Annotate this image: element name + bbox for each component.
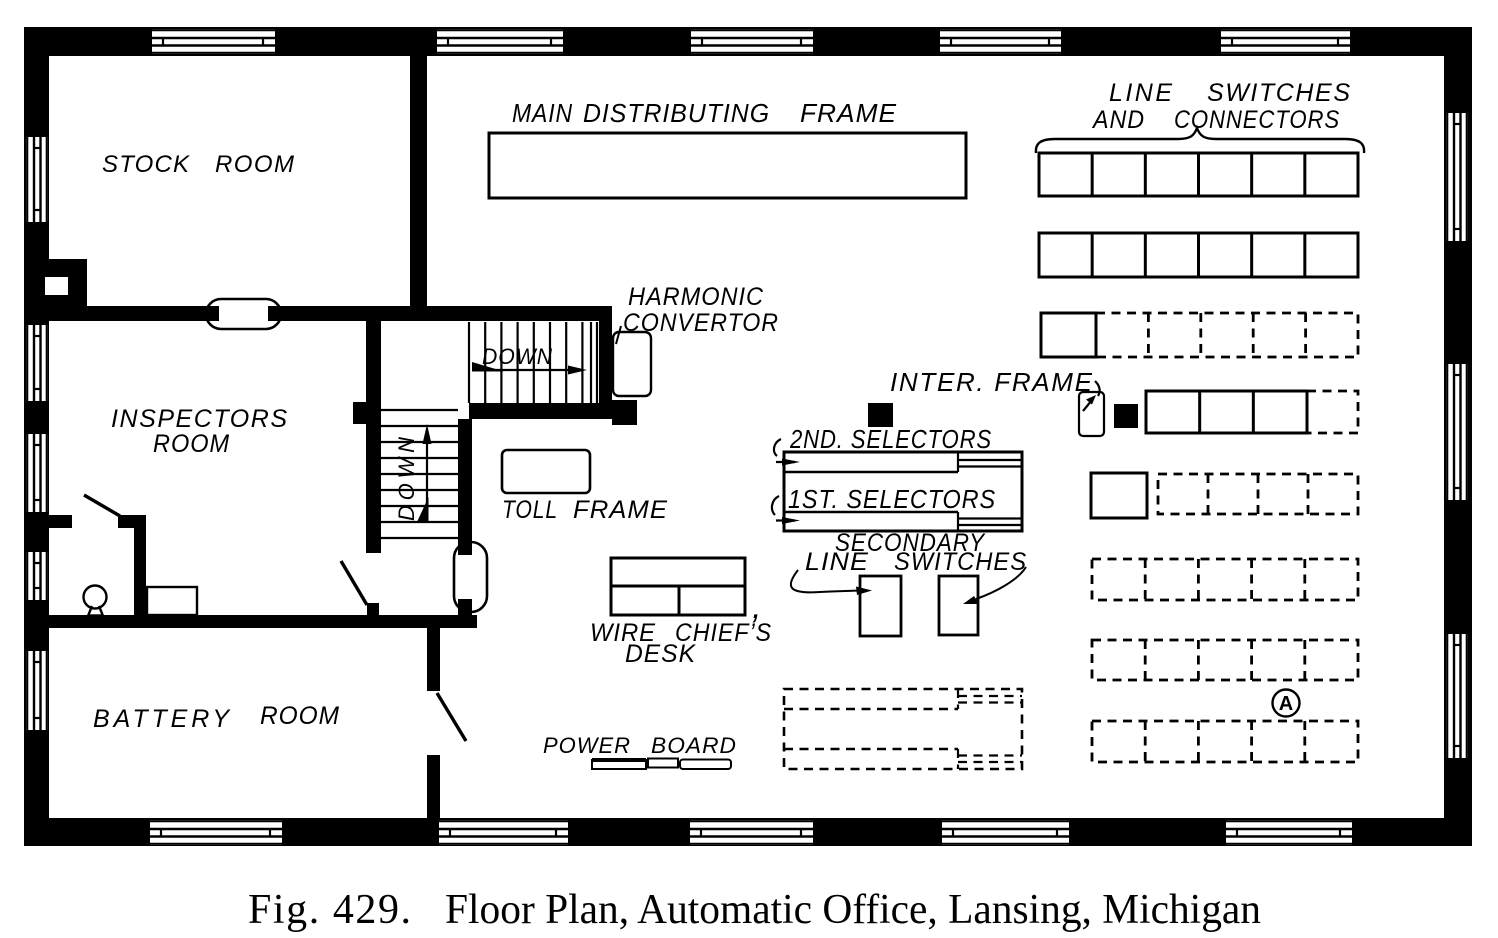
svg-text:INTER. FRAME: INTER. FRAME	[890, 367, 1093, 397]
svg-text:INSPECTORS: INSPECTORS	[111, 405, 288, 433]
svg-text:Fig. 429.: Fig. 429.	[248, 887, 411, 933]
svg-text:DOWN: DOWN	[482, 344, 553, 369]
svg-text:HARMONIC: HARMONIC	[628, 283, 764, 311]
svg-text:DISTRIBUTING: DISTRIBUTING	[583, 98, 770, 128]
svg-text:FRAME: FRAME	[573, 496, 668, 524]
svg-text:LINE: LINE	[1109, 79, 1173, 107]
svg-text:A: A	[1279, 693, 1293, 715]
svg-text:Floor Plan, Automatic Office,: Floor Plan, Automatic Office, Lansing, M…	[445, 887, 1261, 933]
svg-text:DOWN: DOWN	[394, 436, 419, 521]
svg-text:LINE: LINE	[805, 548, 869, 576]
svg-text:TOLL: TOLL	[502, 496, 558, 524]
svg-text:SWITCHES: SWITCHES	[894, 548, 1027, 576]
svg-text:1ST. SELECTORS: 1ST. SELECTORS	[788, 484, 996, 514]
svg-text:MAIN: MAIN	[512, 98, 573, 128]
svg-text:BOARD: BOARD	[651, 733, 737, 758]
svg-text:CONVERTOR: CONVERTOR	[623, 309, 779, 337]
svg-text:FRAME: FRAME	[800, 98, 897, 128]
svg-text:DESK: DESK	[625, 640, 696, 668]
svg-text:ROOM: ROOM	[215, 151, 295, 178]
svg-text:AND: AND	[1091, 106, 1145, 134]
svg-text:ROOM: ROOM	[153, 430, 230, 458]
svg-text:STOCK: STOCK	[102, 151, 190, 178]
svg-text:SWITCHES: SWITCHES	[1207, 79, 1351, 107]
svg-text:ROOM: ROOM	[260, 702, 340, 730]
svg-text:POWER: POWER	[543, 733, 631, 758]
svg-text:2ND. SELECTORS: 2ND. SELECTORS	[789, 424, 992, 454]
